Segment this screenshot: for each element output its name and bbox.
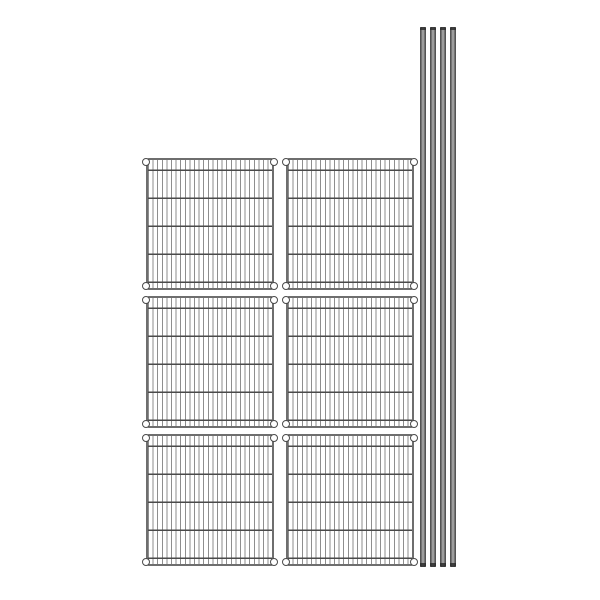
shelf-corner-collar — [270, 158, 278, 166]
shelf-corner-collar — [142, 558, 150, 566]
shelf-corner-collar — [410, 434, 418, 442]
shelf-corner-collar — [410, 282, 418, 290]
wire-shelf-panel — [142, 296, 278, 428]
shelf-corner-collar — [270, 420, 278, 428]
shelf-corner-collar — [142, 296, 150, 304]
shelf-wire-mesh — [146, 296, 274, 428]
shelving-post — [440, 27, 446, 567]
product-illustration — [0, 0, 600, 600]
shelf-panels-group — [142, 158, 418, 566]
shelf-corner-collar — [270, 296, 278, 304]
shelving-post — [430, 27, 436, 567]
shelf-corner-collar — [270, 434, 278, 442]
shelving-post — [450, 27, 456, 567]
wire-shelf-panel — [282, 434, 418, 566]
shelf-corner-collar — [142, 282, 150, 290]
shelf-wire-mesh — [286, 158, 414, 290]
wire-shelf-panel — [282, 296, 418, 428]
shelf-corner-collar — [410, 420, 418, 428]
shelf-corner-collar — [282, 420, 290, 428]
shelving-post — [420, 27, 426, 567]
shelf-wire-mesh — [146, 158, 274, 290]
shelf-corner-collar — [282, 434, 290, 442]
shelf-corner-collar — [282, 296, 290, 304]
shelf-wire-mesh — [286, 296, 414, 428]
shelf-corner-collar — [410, 158, 418, 166]
shelf-corner-collar — [282, 558, 290, 566]
shelf-corner-collar — [410, 558, 418, 566]
posts-group — [420, 27, 456, 567]
shelf-corner-collar — [410, 296, 418, 304]
shelf-corner-collar — [142, 420, 150, 428]
shelf-wire-mesh — [286, 434, 414, 566]
shelf-corner-collar — [142, 158, 150, 166]
wire-shelf-panel — [142, 158, 278, 290]
shelf-corner-collar — [270, 558, 278, 566]
shelf-wire-mesh — [146, 434, 274, 566]
wire-shelf-panel — [282, 158, 418, 290]
wire-shelf-panel — [142, 434, 278, 566]
shelf-corner-collar — [142, 434, 150, 442]
shelf-corner-collar — [270, 282, 278, 290]
shelf-corner-collar — [282, 158, 290, 166]
shelf-corner-collar — [282, 282, 290, 290]
